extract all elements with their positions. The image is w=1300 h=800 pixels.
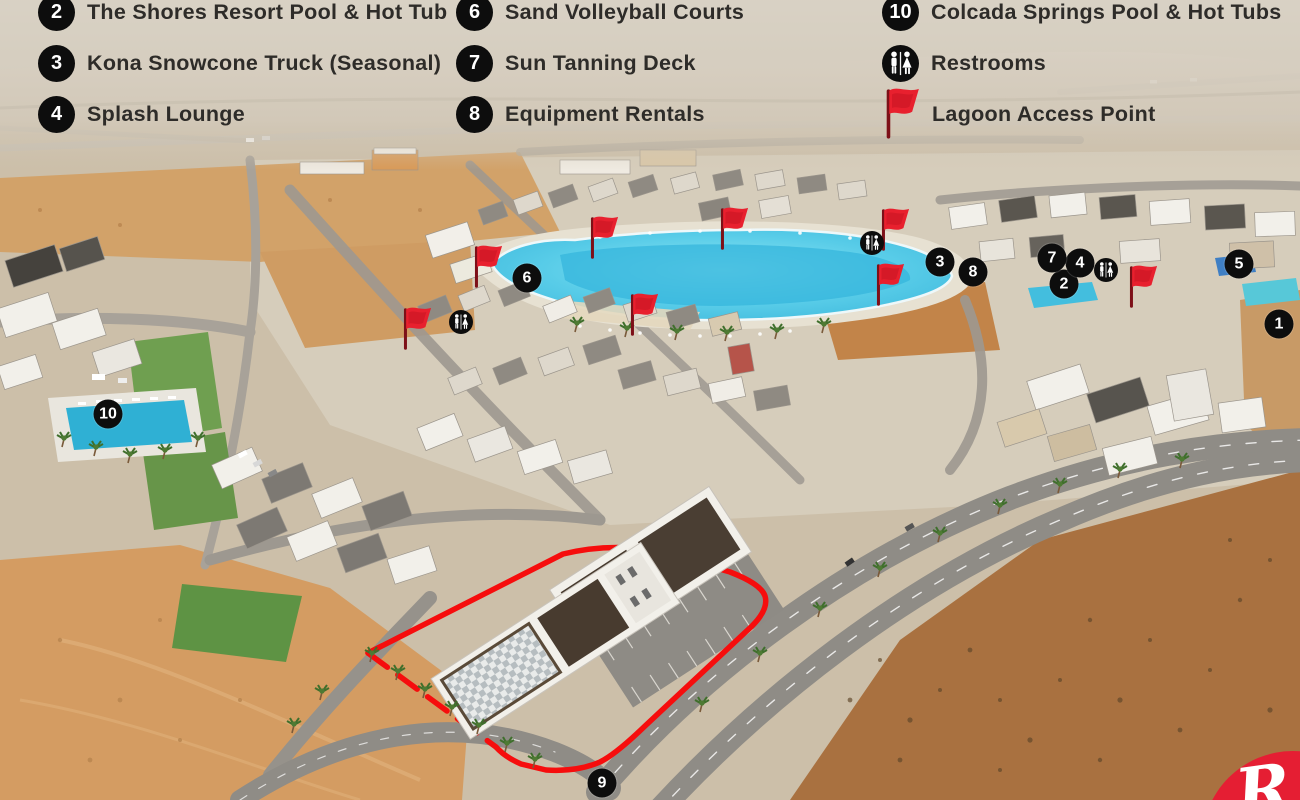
horizon-haze [0,0,1300,170]
brand-logo-letter: R [1231,748,1296,800]
roundabout-center [604,784,612,792]
resort-map-infographic: 2The Shores Resort Pool & Hot Tub3Kona S… [0,0,1300,800]
aerial-map-scene [0,0,1300,800]
